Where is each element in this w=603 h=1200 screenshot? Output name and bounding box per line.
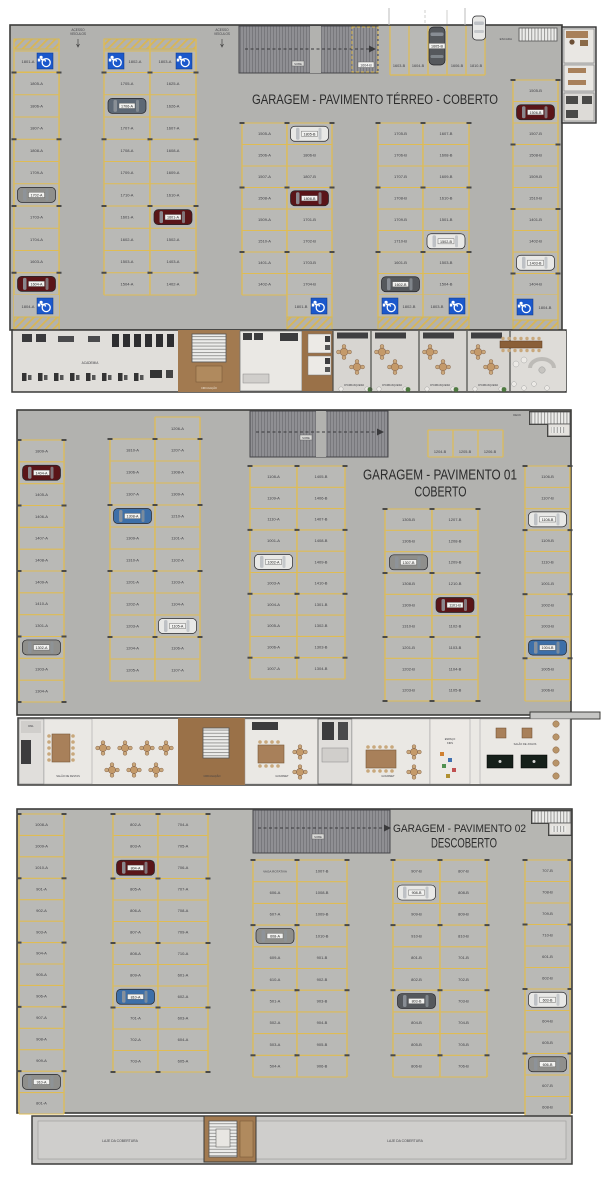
svg-text:901-B: 901-B	[317, 955, 328, 960]
svg-text:1001-B: 1001-B	[541, 581, 554, 586]
svg-text:1207-B: 1207-B	[449, 517, 462, 522]
svg-text:1307-B: 1307-B	[403, 561, 415, 565]
svg-text:1706-B: 1706-B	[394, 153, 407, 158]
svg-text:1108-A: 1108-A	[267, 474, 280, 479]
svg-text:1003-B: 1003-B	[541, 624, 554, 629]
svg-text:705-B: 705-B	[458, 1042, 469, 1047]
svg-text:1401-B: 1401-B	[529, 217, 542, 222]
svg-text:1007-A: 1007-A	[267, 666, 280, 671]
svg-text:1508-B: 1508-B	[529, 153, 542, 158]
svg-text:1410-B: 1410-B	[315, 581, 328, 586]
svg-text:CHURRASQUEIRA: CHURRASQUEIRA	[382, 384, 403, 387]
svg-text:902-B: 902-B	[317, 977, 328, 982]
svg-text:1210-A: 1210-A	[171, 513, 184, 518]
svg-text:1709-A: 1709-A	[121, 170, 134, 175]
svg-text:1409-B: 1409-B	[315, 559, 328, 564]
svg-text:1510-B: 1510-B	[529, 196, 542, 201]
svg-text:1105-A: 1105-A	[172, 625, 184, 629]
svg-text:1203-B: 1203-B	[402, 688, 415, 693]
svg-text:GARAGEM - PAVIMENTO 01: GARAGEM - PAVIMENTO 01	[363, 468, 517, 484]
svg-text:1803-A: 1803-A	[159, 59, 172, 64]
svg-text:1507-B: 1507-B	[529, 131, 542, 136]
svg-text:1707-B: 1707-B	[394, 174, 407, 179]
svg-text:702-A: 702-A	[130, 1037, 141, 1042]
svg-text:606-A: 606-A	[270, 890, 281, 895]
svg-text:1001-A: 1001-A	[267, 538, 280, 543]
svg-text:1109-A: 1109-A	[267, 495, 280, 500]
svg-text:610-A: 610-A	[270, 977, 281, 982]
svg-text:1603-A: 1603-A	[30, 259, 43, 264]
svg-text:1203-A: 1203-A	[126, 623, 139, 628]
svg-text:1604-A: 1604-A	[31, 282, 43, 286]
svg-text:708-B: 708-B	[542, 890, 553, 895]
svg-text:1301-A: 1301-A	[35, 623, 48, 628]
svg-text:1808-B: 1808-B	[304, 197, 316, 201]
svg-text:605-A: 605-A	[178, 1059, 189, 1064]
svg-text:707-B: 707-B	[542, 868, 553, 873]
svg-text:807-A: 807-A	[130, 930, 141, 935]
svg-text:709-A: 709-A	[178, 930, 189, 935]
svg-text:609-A: 609-A	[270, 955, 281, 960]
svg-text:1303-A: 1303-A	[35, 667, 48, 672]
svg-text:802-B: 802-B	[411, 977, 422, 982]
svg-text:1602-B: 1602-B	[395, 283, 407, 287]
svg-text:808-B: 808-B	[458, 890, 469, 895]
svg-text:1305-B: 1305-B	[402, 517, 415, 522]
svg-text:1004-B: 1004-B	[542, 646, 554, 650]
svg-text:1107-A: 1107-A	[171, 667, 184, 672]
svg-text:707-A: 707-A	[178, 887, 189, 892]
svg-text:1503-A: 1503-A	[121, 259, 134, 264]
svg-text:1010-A: 1010-A	[35, 865, 48, 870]
svg-text:1007-B: 1007-B	[316, 868, 329, 873]
svg-text:804-B: 804-B	[411, 1020, 422, 1025]
svg-text:601-A: 601-A	[178, 973, 189, 978]
svg-text:1206-B: 1206-B	[484, 450, 497, 454]
svg-text:1804-A: 1804-A	[22, 304, 35, 309]
svg-text:1410-A: 1410-A	[35, 601, 48, 606]
svg-text:1106-A: 1106-A	[171, 645, 184, 650]
svg-text:1002-B: 1002-B	[541, 602, 554, 607]
svg-text:1607-B: 1607-B	[440, 131, 453, 136]
svg-text:1005-A: 1005-A	[267, 623, 280, 628]
svg-text:905-A: 905-A	[36, 972, 47, 977]
svg-text:1205-B: 1205-B	[459, 450, 472, 454]
svg-text:1102-B: 1102-B	[449, 624, 462, 629]
svg-text:1704-A: 1704-A	[30, 237, 43, 242]
svg-text:1006-B: 1006-B	[541, 688, 554, 693]
svg-text:ACADEMIA: ACADEMIA	[82, 361, 100, 365]
svg-text:504-A: 504-A	[270, 1064, 281, 1069]
svg-text:909-B: 909-B	[411, 912, 422, 917]
svg-text:VEÍCULOS: VEÍCULOS	[214, 32, 230, 36]
svg-text:1104-A: 1104-A	[171, 601, 184, 606]
svg-text:1306-A: 1306-A	[126, 469, 139, 474]
svg-text:1808-A: 1808-A	[30, 148, 43, 153]
svg-text:1202-A: 1202-A	[126, 601, 139, 606]
svg-text:1402-B: 1402-B	[529, 239, 542, 244]
svg-text:1806-A: 1806-A	[30, 103, 43, 108]
svg-text:1505-A: 1505-A	[258, 131, 271, 136]
svg-text:1510-A: 1510-A	[258, 239, 271, 244]
svg-text:1601-A: 1601-A	[167, 216, 179, 220]
svg-text:COBERTO: COBERTO	[415, 485, 467, 501]
svg-text:1707-A: 1707-A	[121, 126, 134, 131]
svg-text:1509-A: 1509-A	[258, 217, 271, 222]
svg-text:1608-A: 1608-A	[167, 148, 180, 153]
svg-text:1103-B: 1103-B	[449, 645, 462, 650]
svg-text:1506-B: 1506-B	[530, 111, 542, 115]
svg-text:1210-B: 1210-B	[449, 581, 462, 586]
svg-text:1406-B: 1406-B	[315, 495, 328, 500]
svg-text:1704-B: 1704-B	[303, 282, 316, 287]
svg-text:1309-B: 1309-B	[402, 602, 415, 607]
svg-text:1306-B: 1306-B	[402, 538, 415, 543]
svg-text:1504-A: 1504-A	[121, 281, 134, 286]
svg-text:1101-A: 1101-A	[171, 535, 184, 540]
svg-text:1506-A: 1506-A	[258, 153, 271, 158]
svg-text:810-A: 810-A	[131, 995, 141, 999]
svg-text:1309-A: 1309-A	[126, 535, 139, 540]
svg-text:1403-B: 1403-B	[530, 261, 542, 265]
svg-text:1502-B: 1502-B	[440, 240, 452, 244]
svg-text:606-B: 606-B	[543, 1063, 553, 1067]
svg-text:1626-A: 1626-A	[167, 103, 180, 108]
svg-text:1404-A: 1404-A	[36, 471, 48, 475]
svg-text:1209-B: 1209-B	[449, 560, 462, 565]
svg-text:1307-A: 1307-A	[126, 491, 139, 496]
svg-text:1708-A: 1708-A	[121, 148, 134, 153]
svg-text:1105-B: 1105-B	[449, 688, 462, 693]
svg-text:704-B: 704-B	[458, 1020, 469, 1025]
svg-text:501-A: 501-A	[270, 998, 281, 1003]
svg-text:SOBE: SOBE	[294, 62, 302, 66]
svg-text:1502-A: 1502-A	[167, 237, 180, 242]
svg-text:1601-A: 1601-A	[121, 215, 134, 220]
svg-text:1810-B: 1810-B	[470, 64, 483, 68]
svg-text:907-B: 907-B	[411, 868, 422, 873]
svg-text:903-B: 903-B	[317, 998, 328, 1003]
svg-text:805-B: 805-B	[411, 1042, 422, 1047]
svg-text:LAJE DA COBERTURA: LAJE DA COBERTURA	[387, 1139, 423, 1143]
svg-text:1710-B: 1710-B	[394, 239, 407, 244]
svg-text:CHURRASQUEIRA: CHURRASQUEIRA	[478, 384, 499, 387]
svg-text:1702-B: 1702-B	[303, 239, 316, 244]
svg-text:1407-A: 1407-A	[35, 536, 48, 541]
svg-text:703-B: 703-B	[458, 998, 469, 1003]
svg-text:805-A: 805-A	[130, 887, 141, 892]
svg-text:1709-B: 1709-B	[394, 217, 407, 222]
svg-text:802-A: 802-A	[130, 822, 141, 827]
svg-text:1405-A: 1405-A	[35, 492, 48, 497]
svg-text:DML: DML	[28, 724, 34, 728]
svg-text:1006-A: 1006-A	[267, 644, 280, 649]
svg-text:1108-B: 1108-B	[542, 518, 554, 522]
svg-text:608-A: 608-A	[270, 935, 280, 939]
svg-text:GOURMET: GOURMET	[381, 774, 395, 778]
svg-text:803-B: 803-B	[412, 1000, 422, 1004]
svg-text:908-B: 908-B	[412, 891, 422, 895]
svg-text:1004-A: 1004-A	[267, 602, 280, 607]
svg-text:1404-B: 1404-B	[529, 282, 542, 287]
svg-text:1208-B: 1208-B	[449, 538, 462, 543]
svg-text:1205-A: 1205-A	[126, 667, 139, 672]
svg-text:801-A: 801-A	[36, 1101, 47, 1106]
svg-text:1110-A: 1110-A	[267, 517, 280, 522]
svg-text:1507-A: 1507-A	[258, 174, 271, 179]
svg-text:1501-B: 1501-B	[440, 217, 453, 222]
svg-text:1308-A: 1308-A	[127, 515, 139, 519]
svg-text:SOBE: SOBE	[302, 436, 310, 440]
svg-text:1304-A: 1304-A	[35, 688, 48, 693]
svg-text:DECK: DECK	[513, 413, 521, 417]
svg-text:1106-B: 1106-B	[541, 474, 554, 479]
svg-text:709-B: 709-B	[542, 911, 553, 916]
svg-text:1003-A: 1003-A	[267, 581, 280, 586]
svg-text:1309-A: 1309-A	[171, 491, 184, 496]
svg-text:1625-A: 1625-A	[167, 81, 180, 86]
svg-text:1406-A: 1406-A	[35, 514, 48, 519]
svg-text:1101-B: 1101-B	[449, 604, 461, 608]
svg-text:1405-B: 1405-B	[315, 474, 328, 479]
svg-text:1609-A: 1609-A	[167, 170, 180, 175]
svg-text:1009-B: 1009-B	[316, 912, 329, 917]
svg-text:ESPAÇO: ESPAÇO	[445, 737, 456, 741]
svg-text:1301-B: 1301-B	[315, 602, 328, 607]
svg-text:1805-B: 1805-B	[304, 132, 316, 136]
svg-text:1703-A: 1703-A	[30, 215, 43, 220]
svg-text:907-A: 907-A	[36, 1015, 47, 1020]
svg-text:1803-B: 1803-B	[431, 304, 444, 309]
svg-text:808-A: 808-A	[130, 951, 141, 956]
svg-text:GARAGEM - PAVIMENTO 02: GARAGEM - PAVIMENTO 02	[393, 823, 526, 835]
svg-text:1109-B: 1109-B	[541, 538, 554, 543]
svg-text:1806-B: 1806-B	[303, 153, 316, 158]
svg-text:1310-A: 1310-A	[126, 557, 139, 562]
svg-text:904-A: 904-A	[36, 951, 47, 956]
svg-text:1610-A: 1610-A	[167, 192, 180, 197]
svg-text:603-A: 603-A	[178, 1016, 189, 1021]
svg-text:1204-B: 1204-B	[434, 450, 447, 454]
svg-text:710-A: 710-A	[178, 951, 189, 956]
svg-text:1604-B: 1604-B	[360, 63, 372, 67]
svg-text:701-A: 701-A	[130, 1016, 141, 1021]
svg-text:ESCADA: ESCADA	[500, 37, 512, 41]
svg-text:906-A: 906-A	[36, 994, 47, 999]
svg-text:1701-B: 1701-B	[303, 217, 316, 222]
svg-text:807-B: 807-B	[458, 868, 469, 873]
svg-text:1408-B: 1408-B	[315, 538, 328, 543]
svg-text:1104-B: 1104-B	[449, 666, 462, 671]
svg-text:1401-A: 1401-A	[258, 260, 271, 265]
svg-text:702-B: 702-B	[458, 977, 469, 982]
svg-text:806-A: 806-A	[130, 908, 141, 913]
svg-text:806-B: 806-B	[411, 1064, 422, 1069]
svg-text:GOURMET: GOURMET	[275, 774, 289, 778]
svg-text:604-B: 604-B	[542, 1019, 553, 1024]
svg-text:1308-A: 1308-A	[171, 469, 184, 474]
svg-text:1103-A: 1103-A	[171, 579, 184, 584]
svg-text:1802-A: 1802-A	[129, 59, 142, 64]
svg-text:906-B: 906-B	[317, 1064, 328, 1069]
svg-text:SOBE: SOBE	[314, 835, 322, 839]
svg-text:809-B: 809-B	[458, 912, 469, 917]
svg-text:1504-B: 1504-B	[440, 282, 453, 287]
svg-text:CHURRASQUEIRA: CHURRASQUEIRA	[344, 384, 365, 387]
svg-text:1801-B: 1801-B	[295, 304, 308, 309]
svg-text:1202-B: 1202-B	[402, 666, 415, 671]
svg-text:1008-A: 1008-A	[35, 822, 48, 827]
svg-text:1801-A: 1801-A	[22, 59, 35, 64]
svg-text:1601-B: 1601-B	[394, 260, 407, 265]
svg-text:1509-B: 1509-B	[529, 174, 542, 179]
svg-text:VAGA ROTATIVA: VAGA ROTATIVA	[263, 869, 288, 873]
svg-text:701-B: 701-B	[458, 955, 469, 960]
svg-text:CHURRASQUEIRA: CHURRASQUEIRA	[430, 384, 451, 387]
svg-text:603-B: 603-B	[543, 998, 553, 1002]
svg-text:1207-A: 1207-A	[171, 447, 184, 452]
svg-text:1304-B: 1304-B	[315, 666, 328, 671]
svg-text:903-A: 903-A	[36, 929, 47, 934]
svg-text:1804-B: 1804-B	[539, 305, 552, 310]
svg-text:809-A: 809-A	[130, 973, 141, 978]
svg-text:1805-A: 1805-A	[30, 81, 43, 86]
svg-text:1610-B: 1610-B	[440, 196, 453, 201]
svg-text:901-A: 901-A	[36, 886, 47, 891]
svg-text:602-A: 602-A	[178, 994, 189, 999]
svg-text:703-A: 703-A	[130, 1059, 141, 1064]
svg-text:1204-A: 1204-A	[126, 645, 139, 650]
svg-text:905-B: 905-B	[317, 1042, 328, 1047]
svg-text:1705-A: 1705-A	[121, 81, 134, 86]
svg-text:601-B: 601-B	[542, 954, 553, 959]
svg-text:1402-A: 1402-A	[167, 281, 180, 286]
svg-text:1407-B: 1407-B	[315, 517, 328, 522]
svg-text:1110-B: 1110-B	[541, 560, 554, 565]
svg-text:1102-A: 1102-A	[171, 557, 184, 562]
svg-text:1802-B: 1802-B	[403, 304, 416, 309]
svg-text:VEÍCULOS: VEÍCULOS	[70, 32, 86, 36]
svg-text:1603-B: 1603-B	[393, 64, 406, 68]
svg-text:1402-A: 1402-A	[258, 282, 271, 287]
svg-text:503-A: 503-A	[270, 1042, 281, 1047]
svg-text:1807-A: 1807-A	[30, 126, 43, 131]
svg-text:1008-B: 1008-B	[316, 890, 329, 895]
svg-text:DESCOBERTO: DESCOBERTO	[431, 836, 497, 851]
svg-text:810-B: 810-B	[458, 933, 469, 938]
svg-text:1810-A: 1810-A	[126, 447, 139, 452]
svg-text:608-B: 608-B	[542, 1105, 553, 1110]
svg-text:909-A: 909-A	[36, 1058, 47, 1063]
svg-text:706-A: 706-A	[178, 865, 189, 870]
svg-text:902-A: 902-A	[36, 908, 47, 913]
svg-text:1709-A: 1709-A	[30, 170, 43, 175]
svg-text:1206-A: 1206-A	[171, 426, 184, 431]
svg-text:607-B: 607-B	[542, 1083, 553, 1088]
svg-text:1604-B: 1604-B	[412, 64, 425, 68]
svg-text:1310-B: 1310-B	[402, 624, 415, 629]
svg-text:904-B: 904-B	[317, 1020, 328, 1025]
svg-text:801-B: 801-B	[411, 955, 422, 960]
svg-text:607-A: 607-A	[270, 912, 281, 917]
svg-text:1409-A: 1409-A	[35, 579, 48, 584]
svg-text:1705-B: 1705-B	[394, 131, 407, 136]
svg-text:1505-B: 1505-B	[529, 88, 542, 93]
svg-text:1010-B: 1010-B	[316, 933, 329, 938]
svg-text:1002-A: 1002-A	[268, 560, 280, 564]
svg-text:1201-B: 1201-B	[402, 645, 415, 650]
svg-text:1609-B: 1609-B	[440, 174, 453, 179]
svg-text:1107-B: 1107-B	[541, 495, 554, 500]
svg-text:908-A: 908-A	[36, 1036, 47, 1041]
svg-text:GARAGEM - PAVIMENTO TÉRREO - C: GARAGEM - PAVIMENTO TÉRREO - COBERTO	[252, 92, 498, 107]
svg-text:602-B: 602-B	[542, 976, 553, 981]
svg-text:1302-B: 1302-B	[315, 623, 328, 628]
svg-text:1303-B: 1303-B	[315, 644, 328, 649]
svg-text:1807-B: 1807-B	[303, 174, 316, 179]
svg-text:1608-B: 1608-B	[440, 153, 453, 158]
svg-text:502-A: 502-A	[270, 1020, 281, 1025]
svg-text:910-B: 910-B	[411, 933, 422, 938]
svg-text:1403-A: 1403-A	[167, 259, 180, 264]
svg-text:1606-B: 1606-B	[451, 64, 464, 68]
svg-text:KIDS: KIDS	[447, 741, 453, 745]
svg-text:708-A: 708-A	[178, 908, 189, 913]
svg-text:710-B: 710-B	[542, 933, 553, 938]
svg-text:1708-B: 1708-B	[394, 196, 407, 201]
svg-text:1703-B: 1703-B	[303, 260, 316, 265]
svg-text:1302-A: 1302-A	[36, 646, 48, 650]
svg-text:706-B: 706-B	[458, 1064, 469, 1069]
svg-text:705-A: 705-A	[178, 844, 189, 849]
svg-text:1710-A: 1710-A	[121, 192, 134, 197]
svg-text:605-B: 605-B	[542, 1040, 553, 1045]
svg-text:1809-A: 1809-A	[35, 448, 48, 453]
svg-text:1408-A: 1408-A	[35, 557, 48, 562]
svg-text:1706-A: 1706-A	[121, 104, 133, 108]
svg-text:1602-A: 1602-A	[121, 237, 134, 242]
svg-text:803-A: 803-A	[130, 844, 141, 849]
svg-text:1607-A: 1607-A	[167, 126, 180, 131]
svg-text:910-A: 910-A	[37, 1080, 47, 1084]
svg-text:LAJE DA COBERTURA: LAJE DA COBERTURA	[102, 1139, 138, 1143]
svg-text:1605-B: 1605-B	[431, 45, 443, 49]
svg-text:1201-A: 1201-A	[126, 579, 139, 584]
svg-text:1702-A: 1702-A	[31, 193, 43, 197]
svg-text:604-A: 604-A	[178, 1037, 189, 1042]
svg-text:1005-B: 1005-B	[541, 666, 554, 671]
svg-text:1009-A: 1009-A	[35, 844, 48, 849]
svg-text:704-A: 704-A	[178, 822, 189, 827]
svg-text:1308-B: 1308-B	[402, 581, 415, 586]
svg-text:1508-A: 1508-A	[258, 196, 271, 201]
svg-text:1503-B: 1503-B	[440, 260, 453, 265]
svg-text:804-A: 804-A	[131, 866, 141, 870]
svg-text:CIRCULAÇÃO: CIRCULAÇÃO	[201, 387, 217, 390]
